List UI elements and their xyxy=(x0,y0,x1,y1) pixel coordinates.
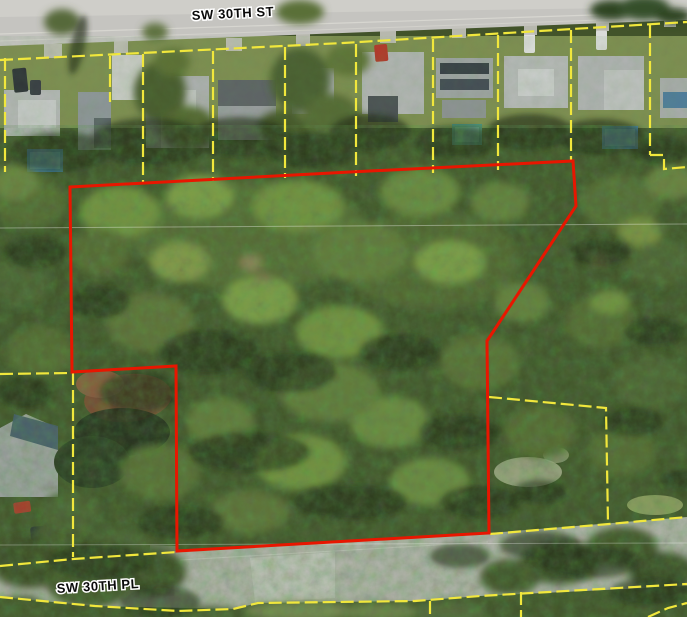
aerial-map-canvas[interactable]: SW 30TH ST SW 30TH PL xyxy=(0,0,687,617)
lawn-texture xyxy=(0,36,687,128)
aerial-map[interactable]: SW 30TH ST SW 30TH PL xyxy=(0,0,687,617)
driveways-part xyxy=(596,20,609,31)
driveways-part xyxy=(524,23,537,35)
tree-canopy-part xyxy=(276,0,324,24)
